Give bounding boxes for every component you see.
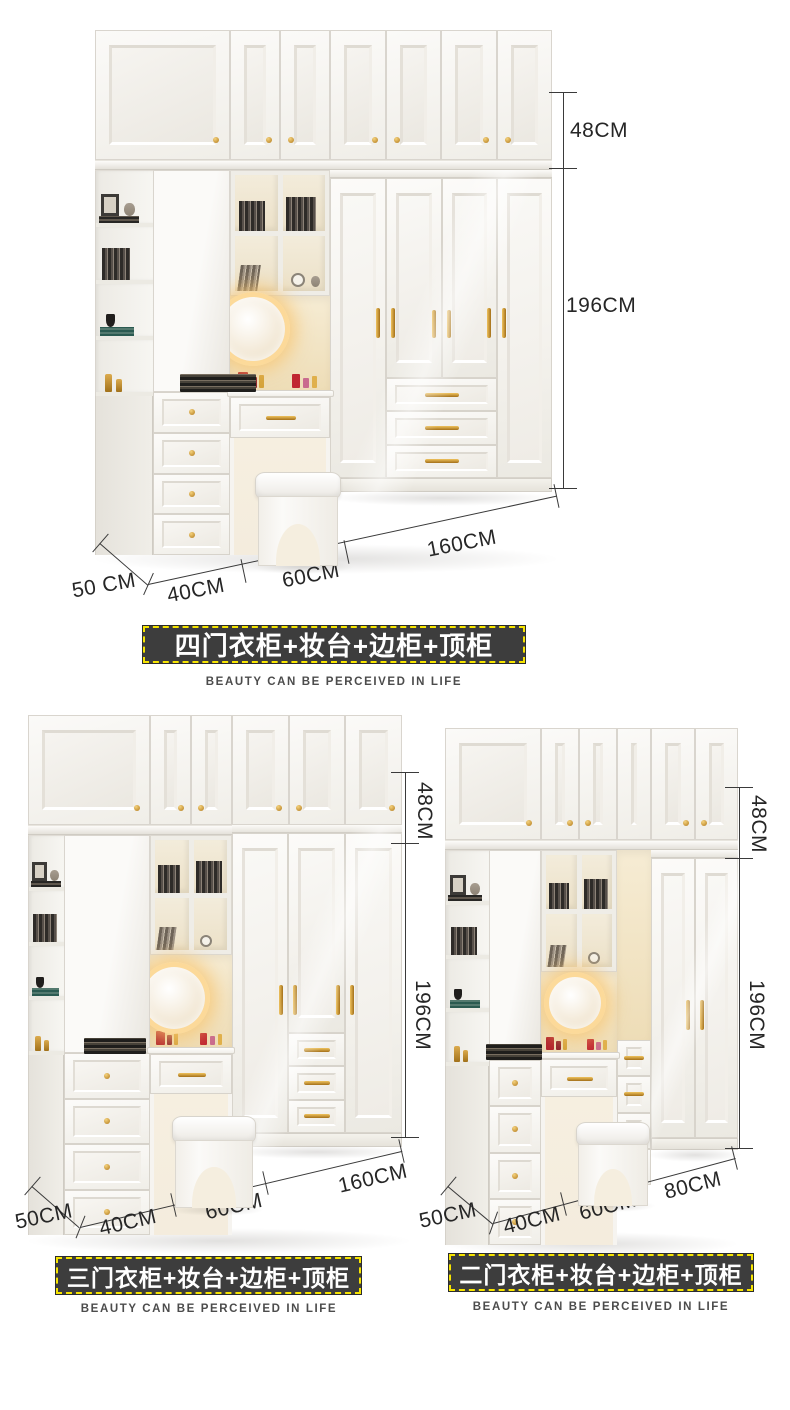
top-cabinets bbox=[445, 728, 738, 840]
top-cabinet-filler bbox=[617, 728, 651, 840]
goblet bbox=[454, 989, 462, 1000]
open-shelf-tower bbox=[445, 850, 489, 1066]
drawer bbox=[489, 1060, 541, 1106]
vanity-stool bbox=[172, 1116, 256, 1208]
gold-knob bbox=[512, 1173, 518, 1179]
cubby bbox=[582, 855, 613, 909]
cosmetic bbox=[596, 1042, 601, 1050]
book-stack bbox=[450, 1000, 480, 1008]
tall-cabinet-panel bbox=[64, 835, 150, 1053]
books bbox=[549, 883, 569, 909]
dimension-label-body-height: 196CM bbox=[744, 980, 768, 1050]
gold-knob bbox=[512, 1126, 518, 1132]
wardrobe-door bbox=[651, 858, 695, 1138]
cubby bbox=[546, 914, 577, 968]
vanity-drawer bbox=[541, 1059, 617, 1097]
stool-arch bbox=[192, 1167, 235, 1208]
vanity-stool bbox=[255, 472, 341, 566]
stool-arch bbox=[594, 1169, 632, 1206]
product-detail-image: 48CM 196CM 50 CM 40CM 60CM 160CM 四门衣柜+妆台… bbox=[0, 0, 790, 1410]
stool-arch bbox=[276, 524, 320, 566]
gold-bottle bbox=[454, 1046, 460, 1062]
gold-bottle bbox=[463, 1050, 468, 1062]
vanity-counter bbox=[538, 1052, 620, 1059]
stool-legs bbox=[258, 496, 339, 566]
shelf-cell bbox=[446, 959, 489, 1013]
gold-handle bbox=[624, 1092, 644, 1096]
book-stack bbox=[448, 895, 482, 901]
gold-handle bbox=[700, 1000, 704, 1030]
drawer bbox=[617, 1040, 651, 1076]
drawer bbox=[617, 1076, 651, 1112]
product-section-two-door: 48CM 196CM 50CM 40CM 60CM 80CM 二门衣柜+妆台+边… bbox=[0, 0, 790, 1410]
gold-knob bbox=[701, 820, 707, 826]
wardrobe-door bbox=[695, 858, 738, 1138]
vanity-stool bbox=[576, 1122, 650, 1206]
vase bbox=[470, 883, 480, 895]
dimension-label-wardrobe: 80CM bbox=[659, 1167, 727, 1206]
gold-handle bbox=[624, 1056, 644, 1060]
crown-molding bbox=[445, 840, 738, 850]
gold-knob bbox=[512, 1080, 518, 1086]
books bbox=[451, 927, 477, 955]
picture-frame bbox=[450, 875, 466, 895]
shelf-cell bbox=[446, 905, 489, 959]
shelf-cell bbox=[446, 851, 489, 905]
gold-knob bbox=[585, 820, 591, 826]
gold-knob bbox=[526, 820, 532, 826]
top-cabinet-door bbox=[579, 728, 617, 840]
cubby bbox=[582, 914, 613, 968]
gold-handle bbox=[686, 1000, 690, 1030]
dimension-label-top-height: 48CM bbox=[746, 795, 770, 853]
side-open-bay bbox=[617, 850, 651, 1040]
stool-legs bbox=[175, 1140, 254, 1208]
cosmetic bbox=[587, 1039, 594, 1050]
height-dimension-line bbox=[739, 787, 740, 1148]
tall-cabinet-panel bbox=[489, 850, 541, 1060]
product-tagline: BEAUTY CAN BE PERCEIVED IN LIFE bbox=[451, 1301, 751, 1313]
top-cabinet-door bbox=[695, 728, 738, 840]
cubby bbox=[546, 855, 577, 909]
book-pile bbox=[84, 1038, 146, 1054]
cosmetic bbox=[563, 1039, 567, 1050]
cosmetic bbox=[556, 1041, 561, 1050]
clock bbox=[588, 952, 600, 964]
books bbox=[547, 945, 566, 967]
drawer bbox=[489, 1106, 541, 1152]
gold-handle bbox=[567, 1077, 593, 1081]
tall-cabinet-panel bbox=[153, 170, 230, 392]
dimension-tick bbox=[725, 787, 753, 788]
led-vanity-mirror bbox=[544, 972, 606, 1034]
books bbox=[584, 879, 608, 909]
dimension-tick bbox=[725, 1148, 753, 1149]
top-cabinet-door bbox=[651, 728, 695, 840]
product-badge: 二门衣柜+妆台+边柜+顶柜 bbox=[449, 1254, 753, 1291]
top-cabinet-door bbox=[445, 728, 541, 840]
book-pile bbox=[180, 374, 256, 392]
drawer bbox=[489, 1153, 541, 1199]
cosmetic bbox=[603, 1040, 607, 1050]
vanity-counter bbox=[147, 1047, 235, 1054]
book-pile bbox=[486, 1044, 542, 1060]
stool-legs bbox=[578, 1144, 648, 1206]
shelf-cell bbox=[446, 1012, 489, 1066]
gold-knob bbox=[567, 820, 573, 826]
perfume-bottle bbox=[546, 1037, 554, 1050]
gold-knob bbox=[683, 820, 689, 826]
display-cubbies bbox=[541, 850, 617, 972]
top-cabinet-door bbox=[541, 728, 579, 840]
wardrobe-crown bbox=[651, 850, 738, 858]
dimension-tick bbox=[725, 858, 753, 859]
